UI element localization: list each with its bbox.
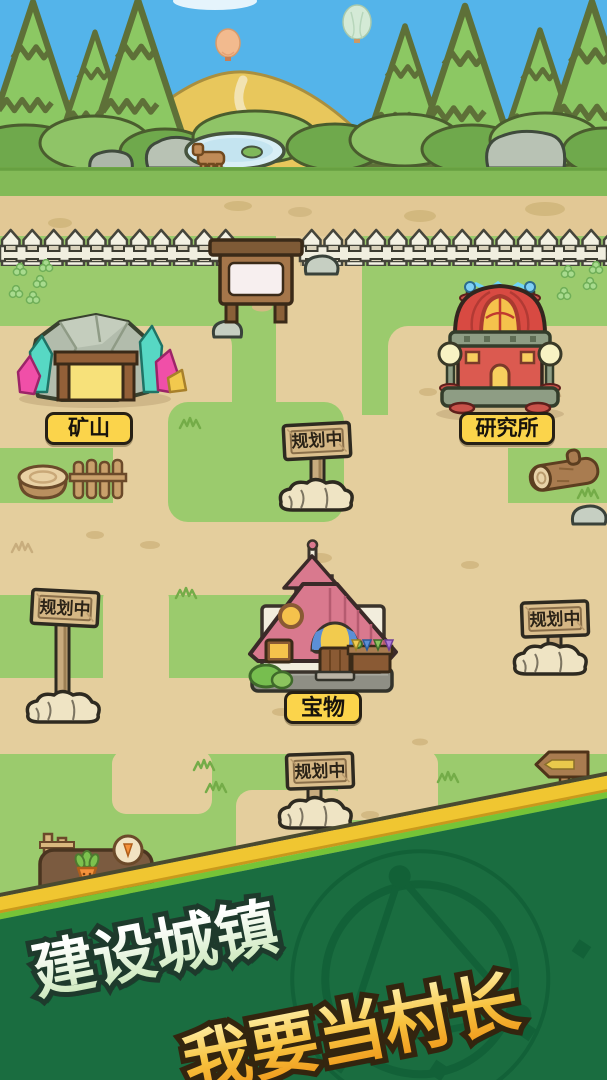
market-stall <box>348 640 393 672</box>
mine-label[interactable]: 矿山 <box>45 412 133 445</box>
planning-sign-left-text: 规划中 <box>32 597 99 620</box>
research-label[interactable]: 研究所 <box>459 412 555 445</box>
grass-strip <box>0 167 607 197</box>
planning-sign-bottom-text: 规划中 <box>287 761 354 783</box>
planning-sign-center-text: 规划中 <box>284 429 351 452</box>
game-screen: 矿山 研究所 宝物 规划中 规划中 规划中 规划中 建设城镇 建设城镇 建设城镇… <box>0 0 607 1080</box>
treasure-label[interactable]: 宝物 <box>284 691 362 724</box>
planning-sign-right-text: 规划中 <box>522 609 589 631</box>
tree-stump <box>19 466 67 498</box>
